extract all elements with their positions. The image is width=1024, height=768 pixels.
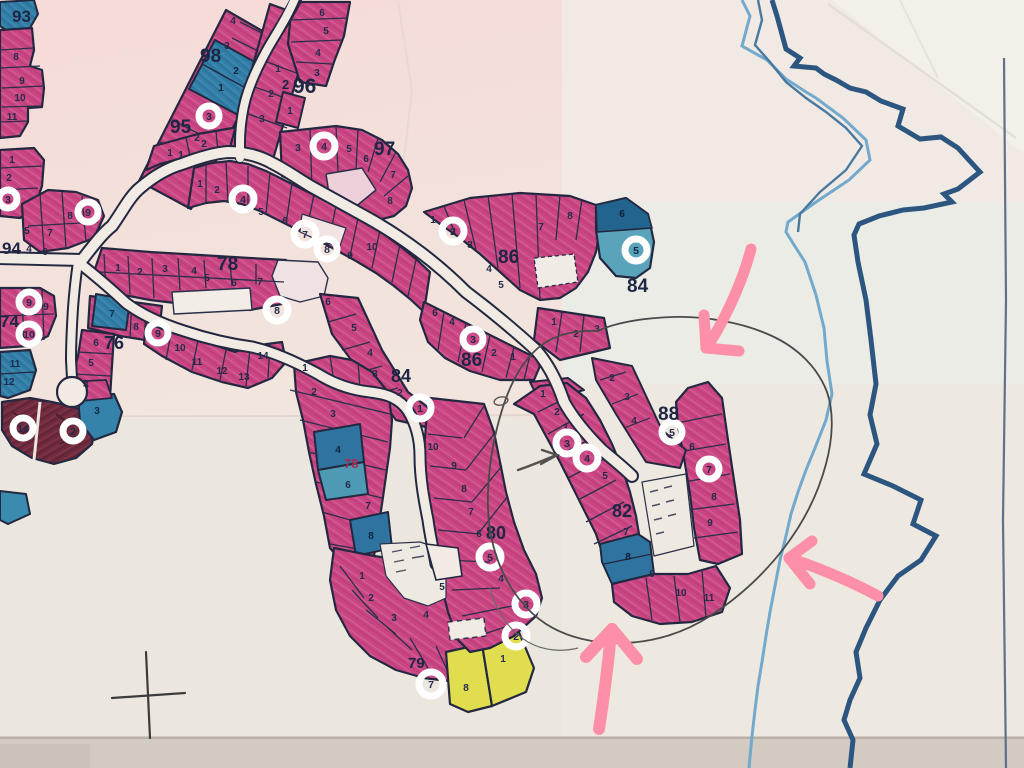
svg-text:74: 74 [0,312,19,331]
svg-text:3: 3 [295,143,301,154]
svg-text:6: 6 [325,297,331,308]
svg-text:8: 8 [463,683,469,694]
svg-text:5: 5 [669,427,675,439]
svg-text:3: 3 [330,409,336,420]
svg-text:10: 10 [675,588,687,599]
svg-text:7: 7 [390,170,396,181]
svg-text:3: 3 [5,194,11,206]
svg-text:8: 8 [567,211,573,222]
svg-text:10: 10 [366,242,378,253]
svg-text:7: 7 [257,277,263,288]
svg-text:5: 5 [88,358,94,369]
svg-text:11: 11 [192,357,203,368]
svg-text:4: 4 [315,48,321,59]
svg-text:5: 5 [258,207,264,218]
svg-text:5: 5 [498,280,504,291]
svg-text:6: 6 [93,338,99,349]
svg-text:9: 9 [649,569,655,580]
svg-text:4: 4 [83,380,89,391]
svg-text:3: 3 [564,438,570,450]
svg-text:6: 6 [363,154,369,165]
svg-text:86: 86 [461,350,482,371]
svg-text:3: 3 [391,613,397,624]
svg-text:88: 88 [658,404,679,425]
svg-text:7: 7 [428,679,434,691]
svg-text:9: 9 [26,297,32,309]
svg-text:7: 7 [706,464,712,476]
svg-text:78: 78 [217,254,238,275]
svg-text:4: 4 [486,264,492,275]
svg-text:3: 3 [224,41,230,52]
svg-text:2: 2 [573,329,579,340]
svg-text:96: 96 [293,75,316,98]
svg-text:3: 3 [624,392,630,403]
svg-text:6: 6 [319,8,325,19]
svg-text:8: 8 [67,211,73,222]
svg-text:3: 3 [467,240,473,251]
svg-text:4: 4 [191,266,197,277]
svg-text:7: 7 [47,228,53,239]
svg-text:6: 6 [689,442,695,453]
svg-text:8: 8 [368,531,374,542]
svg-text:5: 5 [351,323,357,334]
svg-text:3: 3 [206,111,212,123]
svg-text:1: 1 [115,263,121,274]
svg-text:6: 6 [476,529,482,540]
svg-text:1: 1 [218,83,224,94]
svg-text:9: 9 [85,207,91,219]
svg-text:4: 4 [584,453,590,465]
svg-text:3: 3 [470,334,476,346]
svg-text:76: 76 [104,333,124,353]
svg-text:12: 12 [3,377,15,388]
svg-text:2: 2 [6,173,12,184]
svg-text:2: 2 [70,426,76,438]
svg-text:1: 1 [551,317,557,328]
svg-text:6: 6 [432,308,438,319]
svg-text:4: 4 [335,445,341,456]
svg-text:3: 3 [162,264,168,275]
svg-text:8: 8 [711,492,717,503]
svg-text:4: 4 [26,244,32,255]
svg-text:6: 6 [282,216,288,227]
svg-text:9: 9 [43,302,49,313]
svg-text:4: 4 [631,416,637,427]
svg-text:14: 14 [257,351,269,362]
svg-text:2: 2 [282,77,289,92]
svg-text:6: 6 [619,209,625,220]
svg-text:1: 1 [500,654,506,665]
svg-text:7: 7 [302,229,308,241]
svg-text:2: 2 [311,387,317,398]
svg-text:84: 84 [627,276,649,297]
svg-text:84: 84 [391,366,411,386]
svg-text:2: 2 [609,373,615,384]
svg-text:2: 2 [194,133,200,144]
svg-text:1: 1 [510,352,516,363]
svg-text:1: 1 [178,150,184,161]
svg-text:5: 5 [24,226,30,237]
svg-text:3: 3 [372,369,378,380]
svg-text:1: 1 [302,363,308,374]
svg-text:1: 1 [287,106,293,117]
svg-text:10: 10 [427,442,439,453]
svg-text:2: 2 [450,226,456,238]
svg-text:5: 5 [346,144,352,155]
svg-text:14: 14 [17,423,29,435]
svg-text:2: 2 [137,267,143,278]
svg-text:95: 95 [170,117,192,138]
svg-text:4: 4 [321,141,327,153]
svg-text:2: 2 [201,139,207,150]
svg-text:8: 8 [274,305,280,317]
svg-text:8: 8 [324,244,330,256]
svg-text:78: 78 [344,456,358,471]
svg-text:4: 4 [240,194,246,206]
svg-text:93: 93 [12,7,31,26]
svg-text:7: 7 [468,507,474,518]
svg-text:7: 7 [538,222,544,233]
svg-text:1: 1 [359,571,365,582]
svg-text:94: 94 [2,239,21,258]
svg-text:12: 12 [216,366,228,377]
svg-text:8: 8 [387,196,393,207]
svg-text:97: 97 [374,139,395,160]
svg-text:6: 6 [345,480,351,491]
svg-text:8: 8 [625,552,631,563]
svg-text:9: 9 [707,518,713,529]
svg-text:8: 8 [461,484,467,495]
svg-text:11: 11 [7,112,18,123]
svg-text:1: 1 [197,179,203,190]
svg-text:1: 1 [540,389,546,400]
svg-text:86: 86 [498,247,519,268]
svg-text:2: 2 [397,388,403,399]
svg-text:11: 11 [10,359,21,370]
svg-text:5: 5 [602,471,608,482]
svg-text:2: 2 [368,593,374,604]
svg-text:3: 3 [259,114,265,125]
svg-text:4: 4 [367,348,373,359]
svg-text:7: 7 [623,527,629,538]
svg-text:4: 4 [498,574,504,585]
svg-text:1: 1 [275,64,281,75]
svg-text:9: 9 [155,328,161,340]
svg-text:2: 2 [214,185,220,196]
svg-text:5: 5 [633,245,639,257]
svg-text:4: 4 [423,610,429,621]
svg-text:5: 5 [204,273,210,284]
svg-text:8: 8 [133,322,139,333]
svg-text:2: 2 [491,348,497,359]
svg-text:9: 9 [451,461,457,472]
svg-text:98: 98 [200,46,221,67]
svg-text:13: 13 [238,372,250,383]
svg-text:8: 8 [13,52,19,63]
svg-text:11: 11 [704,593,715,604]
svg-text:2: 2 [554,407,560,418]
svg-text:10: 10 [23,329,35,341]
svg-text:2: 2 [268,89,274,100]
svg-text:9: 9 [347,251,353,262]
svg-text:7: 7 [365,501,371,512]
svg-text:5: 5 [439,582,445,593]
svg-text:7: 7 [109,309,115,320]
svg-text:6: 6 [231,278,237,289]
svg-text:1: 1 [9,155,15,166]
svg-text:82: 82 [612,501,632,521]
svg-text:79: 79 [408,655,425,672]
svg-text:2: 2 [233,66,239,77]
svg-text:3: 3 [94,406,100,417]
svg-text:4: 4 [230,16,236,27]
svg-text:1: 1 [430,215,436,226]
svg-text:5: 5 [323,26,329,37]
svg-text:5: 5 [487,552,493,564]
svg-text:4: 4 [449,317,455,328]
svg-text:9: 9 [19,76,25,87]
svg-text:10: 10 [14,93,26,104]
svg-text:6: 6 [42,247,48,258]
svg-text:1: 1 [167,148,173,159]
svg-text:1: 1 [417,403,423,415]
svg-text:10: 10 [174,343,186,354]
